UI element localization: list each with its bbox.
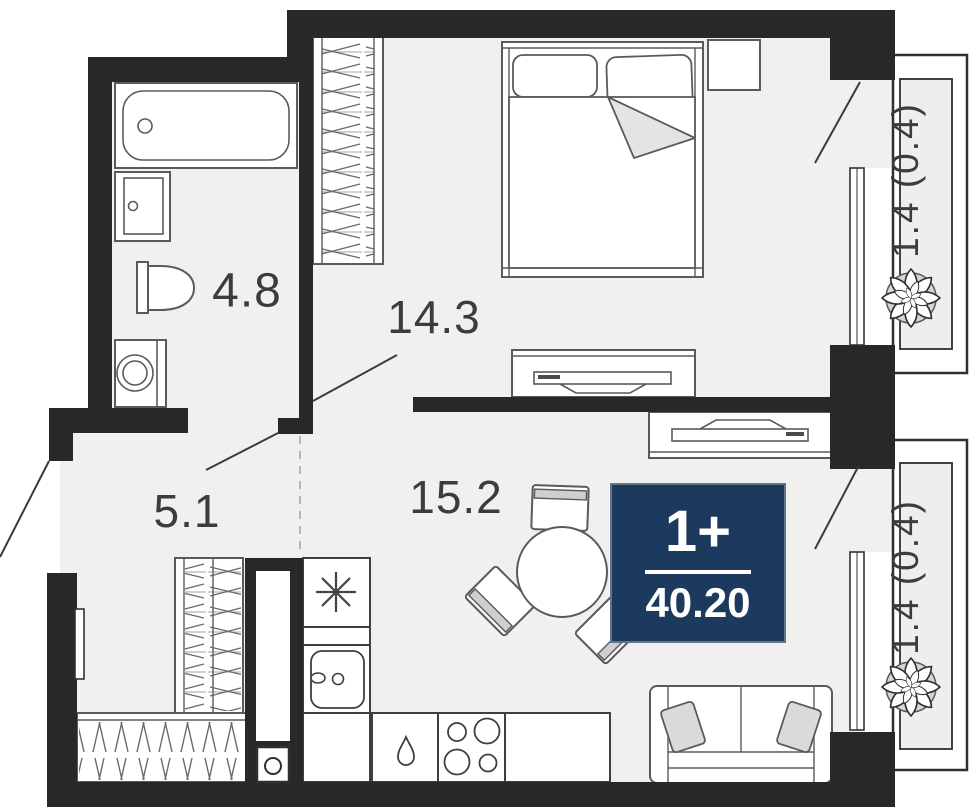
wall-left-lower bbox=[47, 573, 77, 802]
chair bbox=[531, 485, 589, 531]
wall-middle bbox=[413, 397, 832, 412]
blanket bbox=[509, 97, 695, 268]
bedroom-wardrobe bbox=[313, 37, 383, 264]
vent-icon bbox=[265, 758, 281, 774]
wall-bottom bbox=[47, 782, 832, 807]
hall-wardrobe-horizontal bbox=[77, 713, 250, 782]
balcony-top-area-label: 1.4 (0.4) bbox=[885, 102, 927, 258]
badge-divider bbox=[645, 570, 751, 574]
bedroom-area-label: 14.3 bbox=[387, 290, 481, 344]
kitchen-living-area-label: 15.2 bbox=[409, 470, 503, 524]
washbasin bbox=[115, 172, 170, 241]
kitchen-sink-cabinet bbox=[303, 645, 370, 713]
wall-bathroom-left bbox=[88, 57, 112, 410]
wall-bathroom-bottom bbox=[49, 408, 188, 433]
living-tv-stand bbox=[649, 412, 832, 458]
wall-partition bbox=[299, 82, 313, 434]
wall-partition-foot bbox=[278, 418, 313, 434]
wall-mid-right-block bbox=[830, 345, 895, 469]
plant-icon bbox=[882, 269, 940, 327]
counter bbox=[505, 713, 610, 782]
unit-info-badge: 1+ 40.20 bbox=[610, 483, 786, 643]
corner-cabinet bbox=[303, 713, 370, 782]
floor-plan-drawing bbox=[0, 0, 970, 807]
dining-table bbox=[517, 527, 607, 617]
wall-top-right-block bbox=[830, 10, 895, 80]
pillow bbox=[513, 55, 597, 97]
plant-icon bbox=[882, 658, 940, 716]
wall-entrance-stub bbox=[49, 433, 73, 461]
hallway-area-label: 5.1 bbox=[154, 484, 221, 538]
bathroom-area-label: 4.8 bbox=[212, 264, 282, 319]
washing-machine bbox=[115, 340, 166, 407]
unit-type-label: 1+ bbox=[665, 503, 731, 561]
entrance-door-swing bbox=[0, 461, 49, 557]
floor-plan: 4.8 14.3 5.1 15.2 1.4 (0.4) 1.4 (0.4) 1+… bbox=[0, 0, 970, 807]
stove bbox=[438, 713, 505, 782]
wall-top bbox=[287, 10, 895, 38]
bathtub bbox=[115, 83, 297, 168]
balcony-bottom-area-label: 1.4 (0.4) bbox=[885, 499, 927, 655]
bedroom-tv-stand bbox=[512, 350, 695, 397]
wall-bathroom-top bbox=[88, 57, 299, 82]
bed bbox=[502, 42, 703, 277]
fridge-asterisk-icon bbox=[316, 572, 356, 612]
sofa bbox=[650, 686, 832, 783]
nightstand bbox=[708, 40, 760, 90]
dishwasher-cabinet bbox=[372, 713, 438, 782]
hall-wardrobe-vertical bbox=[175, 558, 243, 713]
utility-shaft-details bbox=[256, 571, 290, 782]
wall-bottom-right-block bbox=[830, 732, 895, 807]
radiator bbox=[75, 609, 84, 679]
unit-area-label: 40.20 bbox=[645, 582, 750, 624]
